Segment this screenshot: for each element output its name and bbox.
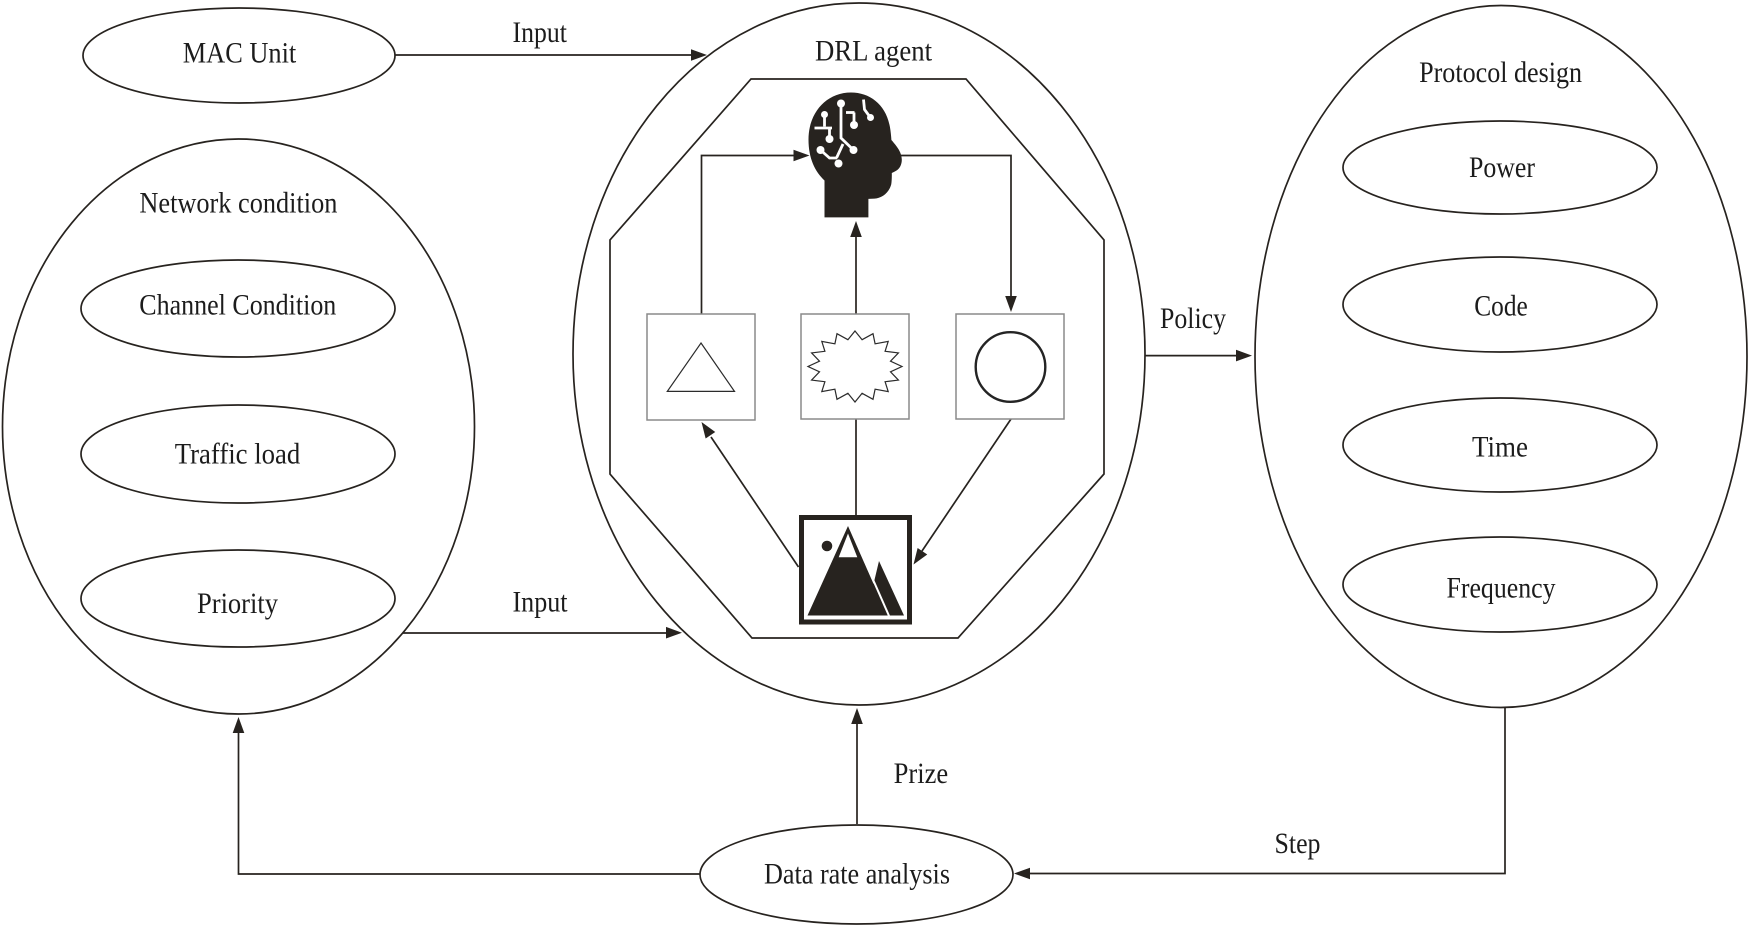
svg-text:Input: Input [513, 16, 568, 49]
svg-text:Step: Step [1275, 827, 1321, 860]
svg-text:Time: Time [1472, 431, 1528, 464]
svg-text:MAC Unit: MAC Unit [183, 36, 297, 69]
svg-text:Protocol design: Protocol design [1419, 56, 1582, 89]
svg-text:Data rate analysis: Data rate analysis [764, 857, 950, 890]
svg-text:Priority: Priority [197, 587, 278, 620]
svg-text:Policy: Policy [1160, 302, 1226, 335]
svg-text:Input: Input [513, 586, 569, 619]
svg-text:Prize: Prize [894, 757, 949, 790]
svg-text:Channel Condition: Channel Condition [139, 289, 336, 322]
svg-text:Network condition: Network condition [139, 186, 337, 219]
svg-text:Code: Code [1474, 290, 1528, 323]
svg-text:DRL agent: DRL agent [815, 35, 933, 68]
svg-text:Traffic load: Traffic load [175, 438, 301, 471]
svg-text:Frequency: Frequency [1447, 571, 1556, 604]
svg-text:Power: Power [1469, 151, 1535, 184]
